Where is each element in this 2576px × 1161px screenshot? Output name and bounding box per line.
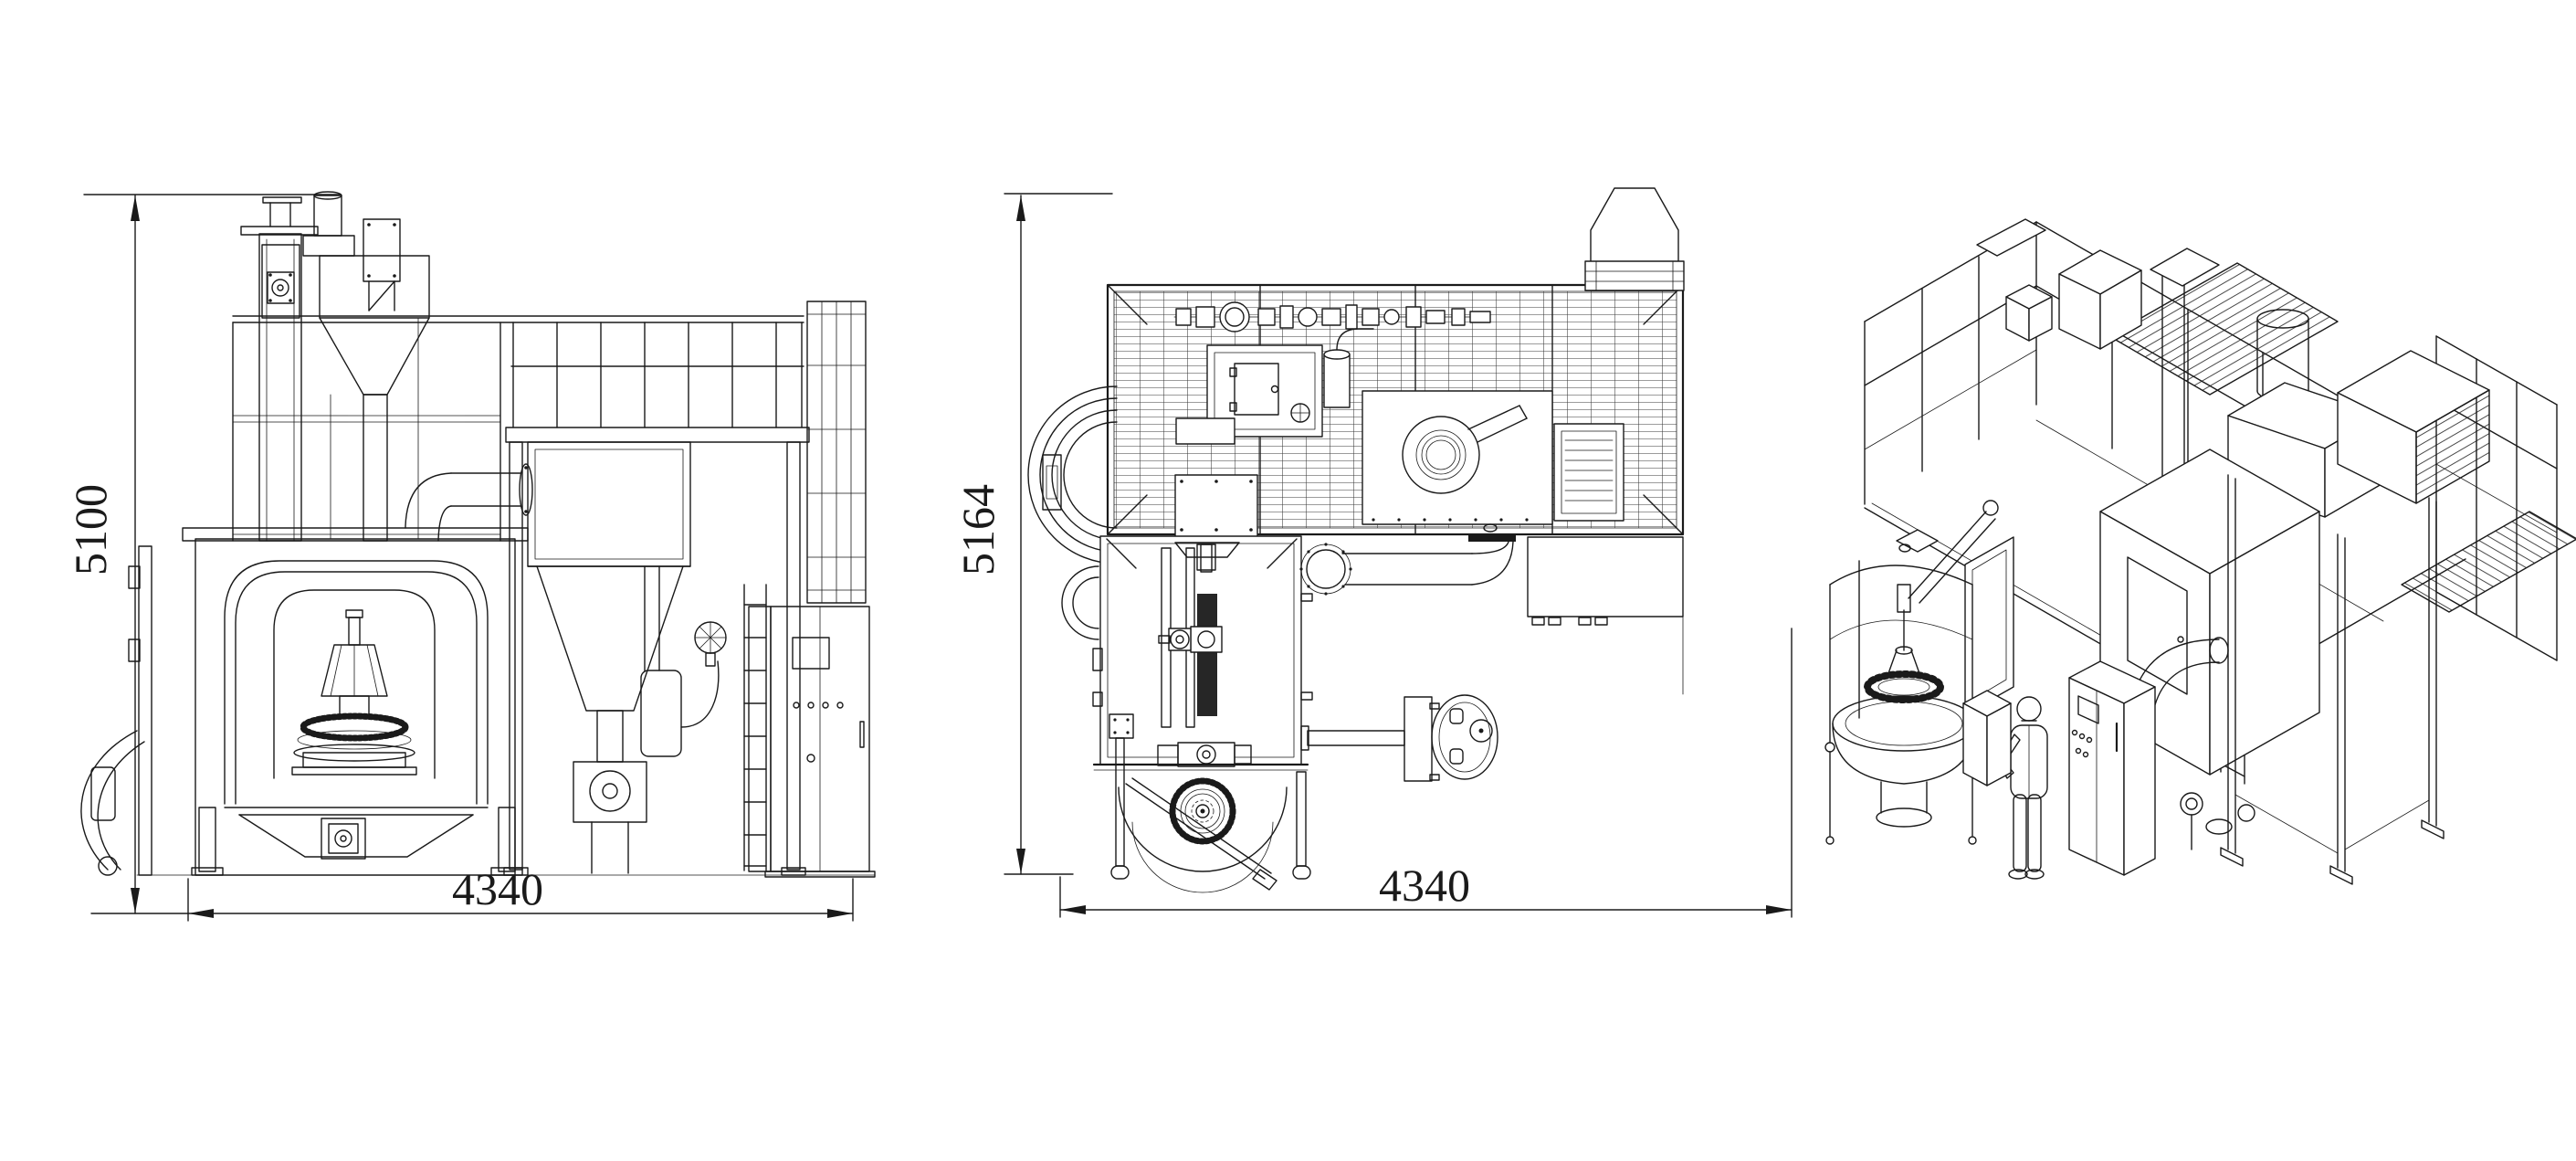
front-dimensions: 5100 4340 bbox=[65, 195, 853, 921]
plan-width-dimension: 4340 bbox=[1379, 860, 1470, 911]
front-elevation-view: 5100 4340 bbox=[65, 192, 875, 921]
abrasive-piping bbox=[641, 566, 726, 756]
junction-box bbox=[363, 219, 400, 311]
exhaust-stack bbox=[303, 192, 354, 256]
service-platform bbox=[233, 316, 809, 875]
plan-view: 5164 4340 bbox=[952, 188, 1792, 917]
front-ladder bbox=[744, 585, 766, 871]
iso-console bbox=[1963, 691, 2011, 786]
hmi-screen bbox=[793, 638, 829, 669]
vent-stack-plan bbox=[1585, 188, 1684, 290]
cad-canvas: 5100 4340 bbox=[0, 0, 2576, 1161]
drawing-sheet: 5100 4340 bbox=[0, 0, 2576, 1161]
plan-machine bbox=[1028, 188, 1684, 892]
front-width-dimension: 4340 bbox=[452, 863, 543, 914]
front-machine bbox=[81, 192, 875, 877]
robot-manipulator-plan bbox=[1301, 695, 1498, 781]
electrical-cabinet bbox=[749, 607, 875, 877]
iso-rotary-table bbox=[1825, 501, 1998, 844]
blast-cabinet bbox=[183, 528, 528, 875]
louver-panel-plan bbox=[1554, 424, 1624, 521]
collector-plan bbox=[1299, 524, 1683, 694]
dust-collector bbox=[528, 442, 690, 873]
workpiece-gear bbox=[292, 610, 416, 775]
iso-control-cabinet bbox=[2069, 661, 2155, 875]
plan-height-dimension: 5164 bbox=[952, 484, 1004, 575]
bucket-elevator bbox=[241, 197, 318, 541]
front-height-dimension: 5100 bbox=[65, 484, 116, 575]
front-fence-panel bbox=[807, 301, 866, 603]
cyclone-separator bbox=[320, 256, 429, 541]
vent-duct bbox=[405, 464, 532, 541]
isometric-view bbox=[1825, 219, 2576, 884]
